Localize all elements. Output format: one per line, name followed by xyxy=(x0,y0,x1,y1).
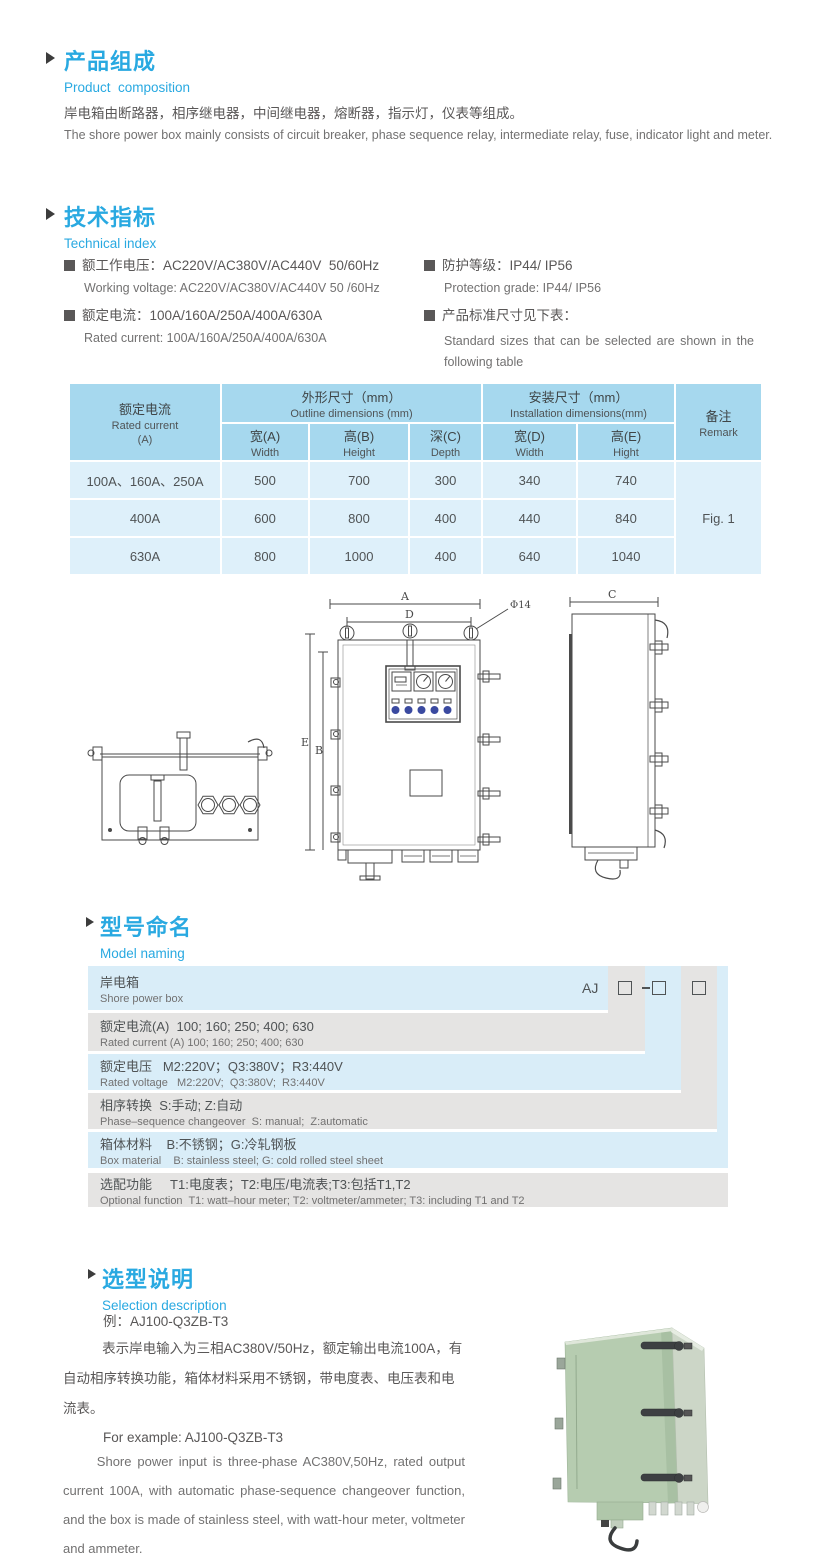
spec-bullet-icon xyxy=(424,260,435,271)
ladder-row-rated-current: 额定电流(A) 100; 160; 250; 400; 630 Rated cu… xyxy=(88,1013,645,1051)
dim-d-label: D xyxy=(405,608,414,621)
model-prefix: AJ xyxy=(582,980,598,996)
header-hight-e: 高(E)Hight xyxy=(578,424,674,460)
table-row: 100A、160A、250A 500 700 300 340 740 Fig. … xyxy=(70,462,761,498)
ladder-row-shore-power-box: 岸电箱 Shore power box xyxy=(88,966,608,1010)
section-title-zh: 产品组成 xyxy=(64,44,190,76)
spec-list-left: 额工作电压：AC220V/AC380V/AC440V 50/60Hz Worki… xyxy=(64,254,414,354)
header-width-a: 宽(A)Width xyxy=(222,424,308,460)
product-photo-image xyxy=(545,1298,827,1566)
spec-item: 额工作电压：AC220V/AC380V/AC440V 50/60Hz Worki… xyxy=(64,254,414,295)
side-latch-icons xyxy=(650,641,668,818)
selection-example-en: For example: AJ100-Q3ZB-T3 xyxy=(103,1430,468,1445)
spec-list-right: 防护等级：IP44/ IP56 Protection grade: IP44/ … xyxy=(424,254,774,382)
cell-value: 700 xyxy=(310,462,408,498)
cell-value: 800 xyxy=(310,500,408,536)
section-title-zh: 技术指标 xyxy=(64,200,156,232)
cabinet xyxy=(553,1328,709,1550)
hinge-icons xyxy=(553,1358,565,1489)
cell-current: 630A xyxy=(70,538,220,574)
side-view: C xyxy=(569,588,668,879)
table-row: 400A 600 800 400 440 840 xyxy=(70,500,761,536)
cell-value: 300 xyxy=(410,462,481,498)
control-panel xyxy=(386,666,460,722)
cell-value: 640 xyxy=(483,538,576,574)
spec-bullet-icon xyxy=(424,310,435,321)
spec-en: Protection grade: IP44/ IP56 xyxy=(444,281,774,295)
cell-value: 400 xyxy=(410,500,481,536)
cell-current: 100A、160A、250A xyxy=(70,462,220,498)
spec-item: 产品标准尺寸见下表： Standard sizes that can be se… xyxy=(424,304,754,373)
table-row: 630A 800 1000 400 640 1040 xyxy=(70,538,761,574)
section-arrow-icon xyxy=(46,208,55,220)
spec-zh: 额工作电压：AC220V/AC380V/AC440V 50/60Hz xyxy=(82,258,379,273)
hole-diameter-label: Φ14 xyxy=(510,600,531,611)
header-width-d: 宽(D)Width xyxy=(483,424,576,460)
section-title-zh: 型号命名 xyxy=(100,910,192,942)
section-model-naming-header: 型号命名 Model naming xyxy=(86,910,192,961)
header-depth-c: 深(C)Depth xyxy=(410,424,481,460)
code-box-icon xyxy=(652,981,666,995)
section-title-en: Model naming xyxy=(100,946,192,961)
code-dash-icon xyxy=(642,987,650,989)
header-remark: 备注 Remark xyxy=(676,384,761,460)
cell-current: 400A xyxy=(70,500,220,536)
section-product-composition-header: 产品组成 Product composition xyxy=(46,44,190,95)
header-height-b: 高(B)Height xyxy=(310,424,408,460)
selection-paragraph-zh: 表示岸电输入为三相AC380V/50Hz，额定输出电流100A，有自动相序转换功… xyxy=(63,1334,465,1424)
bottom-fittings xyxy=(597,1502,709,1550)
cell-value: 600 xyxy=(222,500,308,536)
hinge-icons xyxy=(331,678,340,842)
product-composition-body-en: The shore power box mainly consists of c… xyxy=(64,128,772,142)
front-view: A D Φ14 E B xyxy=(301,590,531,880)
bottom-view xyxy=(88,732,272,845)
selection-paragraph-en: Shore power input is three-phase AC380V,… xyxy=(63,1447,465,1563)
model-naming-ladder: AJ 岸电箱 Shore power box 额定电流(A) 100; 160;… xyxy=(88,966,728,1208)
section-arrow-icon xyxy=(88,1269,96,1279)
spec-item: 额定电流：100A/160A/250A/400A/630A Rated curr… xyxy=(64,304,414,345)
spec-en: Working voltage: AC220V/AC380V/AC440V 50… xyxy=(84,281,414,295)
header-outline-dimensions: 外形尺寸（mm） Outline dimensions (mm) xyxy=(222,384,481,422)
dim-c-label: C xyxy=(608,588,616,601)
cell-value: 340 xyxy=(483,462,576,498)
cell-value: 800 xyxy=(222,538,308,574)
code-column-band xyxy=(717,966,728,1132)
header-rated-current: 额定电流 Rated current (A) xyxy=(70,384,220,460)
section-title-en: Technical index xyxy=(64,236,156,251)
cell-value: 500 xyxy=(222,462,308,498)
code-box-icon xyxy=(618,981,632,995)
product-composition-body-zh: 岸电箱由断路器，相序继电器，中间继电器，熔断器，指示灯，仪表等组成。 xyxy=(64,102,523,122)
section-arrow-icon xyxy=(46,52,55,64)
nameplate xyxy=(410,770,442,796)
cable-gland-icons xyxy=(198,796,260,813)
section-selection-description-header: 选型说明 Selection description xyxy=(88,1262,227,1313)
spec-zh: 防护等级：IP44/ IP56 xyxy=(442,258,573,273)
dim-a-label: A xyxy=(400,590,410,603)
spec-item: 防护等级：IP44/ IP56 Protection grade: IP44/ … xyxy=(424,254,774,295)
spec-en: Standard sizes that can be selected are … xyxy=(444,331,754,373)
ladder-row-phase-sequence: 相序转换 S:手动; Z:自动 Phase–sequence changeove… xyxy=(88,1093,717,1129)
technical-drawing-svg: A D Φ14 E B xyxy=(80,582,700,882)
dimensions-table: 额定电流 Rated current (A) 外形尺寸（mm） Outline … xyxy=(68,382,763,576)
cell-value: 740 xyxy=(578,462,674,498)
code-box-icon xyxy=(692,981,706,995)
cell-value: 440 xyxy=(483,500,576,536)
spec-bullet-icon xyxy=(64,310,75,321)
header-installation-dimensions: 安装尺寸（mm） Installation dimensions(mm) xyxy=(483,384,674,422)
cell-remark: Fig. 1 xyxy=(676,462,761,574)
selection-example-zh: 例：AJ100-Q3ZB-T3 xyxy=(103,1310,468,1330)
cell-value: 400 xyxy=(410,538,481,574)
selection-body: 例：AJ100-Q3ZB-T3 表示岸电输入为三相AC380V/50Hz，额定输… xyxy=(63,1310,468,1563)
spec-zh: 产品标准尺寸见下表： xyxy=(442,308,577,323)
section-title-en: Product composition xyxy=(64,80,190,95)
cell-value: 840 xyxy=(578,500,674,536)
spec-zh: 额定电流：100A/160A/250A/400A/630A xyxy=(82,308,322,323)
spec-en: Rated current: 100A/160A/250A/400A/630A xyxy=(84,331,414,345)
cell-value: 1000 xyxy=(310,538,408,574)
ladder-row-rated-voltage: 额定电压 M2:220V；Q3:380V；R3:440V Rated volta… xyxy=(88,1054,681,1090)
cell-value: 1040 xyxy=(578,538,674,574)
ladder-row-box-material: 箱体材料 B:不锈钢；G:冷轧钢板 Box material B: stainl… xyxy=(88,1132,728,1168)
section-technical-index-header: 技术指标 Technical index xyxy=(46,200,156,251)
code-column-band xyxy=(645,966,681,1054)
section-arrow-icon xyxy=(86,917,94,927)
spec-bullet-icon xyxy=(64,260,75,271)
section-title-zh: 选型说明 xyxy=(102,1262,227,1294)
ladder-row-optional-function: 选配功能 T1:电度表；T2:电压/电流表;T3:包括T1,T2 Optiona… xyxy=(88,1173,728,1207)
latch-icons xyxy=(478,671,500,845)
catalog-page: 产品组成 Product composition 岸电箱由断路器，相序继电器，中… xyxy=(0,0,830,1568)
dim-e-label: E xyxy=(301,736,309,749)
dim-b-label: B xyxy=(315,744,323,757)
